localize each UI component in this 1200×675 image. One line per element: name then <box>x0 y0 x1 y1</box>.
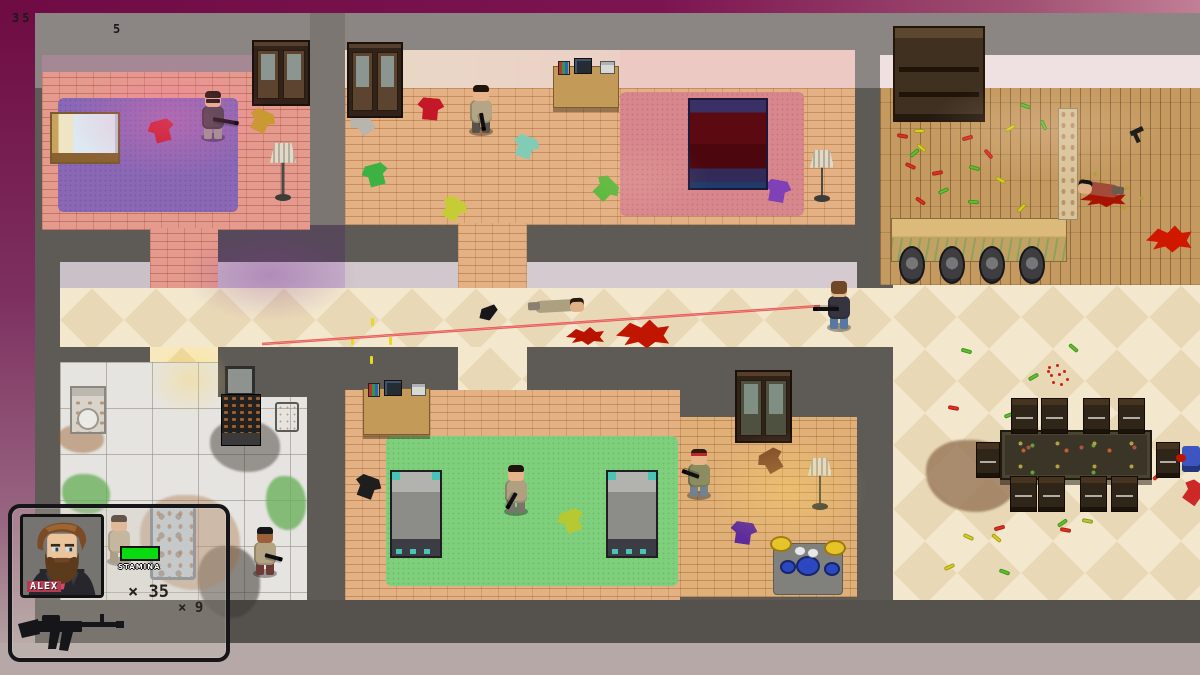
floor-lamp <box>808 458 832 510</box>
wall-dark-purple <box>218 225 345 265</box>
blood-drop <box>1058 373 1061 376</box>
enemy-bathroom[interactable] <box>250 526 280 578</box>
chair <box>1011 398 1038 434</box>
enemy-rifleman[interactable] <box>824 280 854 332</box>
ammo-magazine-count: × 35 <box>128 582 169 602</box>
trash-can <box>275 402 299 432</box>
bar-stool <box>899 246 925 284</box>
bed <box>606 470 658 558</box>
chair <box>1083 398 1110 434</box>
blood-drop <box>1047 370 1050 373</box>
corpse-partial <box>1182 446 1200 472</box>
wardrobe <box>735 370 792 443</box>
player-portrait: ALEX <box>20 514 104 598</box>
chair <box>1118 398 1145 434</box>
enemy-shotgunner[interactable] <box>198 90 228 142</box>
blood-drop <box>1063 370 1066 373</box>
enemy-headband[interactable] <box>684 448 714 500</box>
drum-kit <box>773 543 843 595</box>
corridor-floor <box>60 288 893 347</box>
blood-drop <box>1056 364 1059 367</box>
rifle-icon <box>16 604 128 658</box>
chair <box>976 442 1000 478</box>
player-hud: ALEX STAMINA × 35 × 9 <box>8 504 230 662</box>
bullet-casing <box>1125 186 1129 190</box>
chair <box>1041 398 1068 434</box>
doorway-floor <box>150 228 218 290</box>
chair <box>1080 476 1107 512</box>
enemy-guard[interactable] <box>466 84 496 136</box>
sink-cabinet <box>221 394 261 446</box>
blood-drop <box>1060 383 1063 386</box>
doorway-floor <box>458 223 527 290</box>
stamina-label: STAMINA <box>118 563 161 571</box>
stamina-fill <box>122 548 158 559</box>
dining-table <box>1000 430 1152 480</box>
mirror <box>225 366 255 396</box>
mold-stain <box>266 476 306 530</box>
blood-drop <box>1052 381 1055 384</box>
wall-face <box>527 262 857 288</box>
floor-lamp <box>810 150 834 202</box>
floor-lamp <box>270 143 296 201</box>
enemy-bedroom[interactable] <box>501 464 531 516</box>
chair <box>1111 476 1138 512</box>
void-border-top <box>0 0 1200 13</box>
computer-desk <box>363 388 430 435</box>
bed <box>390 470 442 558</box>
game-viewport[interactable]: 35 5 AL <box>0 0 1200 675</box>
bar-stool <box>939 246 965 284</box>
wall-face <box>218 262 345 288</box>
counter-primary: 35 <box>12 11 32 25</box>
stamina-bar <box>120 546 160 561</box>
bullet-casing <box>370 356 373 364</box>
corpse <box>527 293 584 320</box>
chair <box>1038 476 1065 512</box>
bed <box>50 112 120 164</box>
bar-stool <box>979 246 1005 284</box>
bar-stool <box>1019 246 1045 284</box>
computer-desk <box>553 66 619 108</box>
bullet-casing <box>1122 206 1126 210</box>
blood-drop <box>1066 378 1069 381</box>
wall-face <box>60 262 150 288</box>
wooden-shelf <box>893 26 985 122</box>
ammo-reserve-count: × 9 <box>178 600 203 616</box>
counter-secondary: 5 <box>113 22 120 36</box>
player-name-label: ALEX <box>27 581 61 592</box>
bullet-casing <box>1140 196 1144 200</box>
confetti-casing <box>914 129 925 133</box>
blood-drop <box>1050 374 1053 377</box>
wardrobe <box>347 42 403 118</box>
blood-drop <box>1048 366 1051 369</box>
bullet-casing <box>389 337 392 345</box>
double-bed <box>688 98 768 190</box>
wood-pillar <box>1058 108 1078 220</box>
confetti-casing <box>968 200 979 205</box>
bullet-casing <box>351 337 354 345</box>
toilet <box>70 386 106 434</box>
stamina-widget: STAMINA <box>120 546 164 578</box>
wardrobe <box>252 40 310 106</box>
bullet-casing <box>371 318 374 326</box>
wall-face-lit <box>620 50 855 88</box>
wall-face <box>345 262 458 288</box>
chair <box>1010 476 1037 512</box>
